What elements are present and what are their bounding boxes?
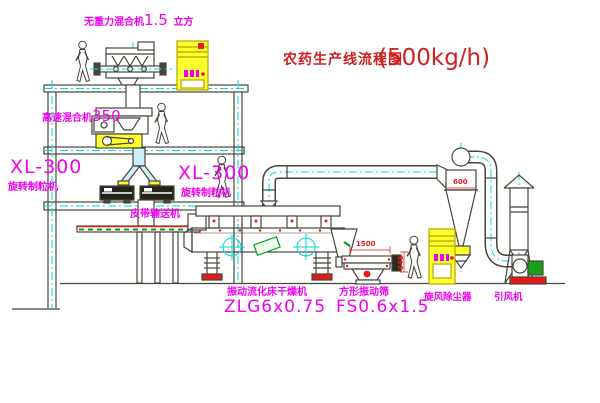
label-gravity-mixer: 无重力混合机1.5 立方 [84,12,193,28]
granulator-left-drawing [100,186,134,203]
fluid-bed-dryer-drawing [184,206,352,280]
label-granulator-left-name: 旋转制粒机 [8,183,58,193]
flow-diagram-canvas: 农药生产线流程图 (500kg/h) 无重力混合机1.5 立方 高速混合机350… [0,0,600,403]
worker-figure-1 [76,41,90,81]
belt-conveyor-drawing [77,226,200,283]
label-granulator-left-model: XL-300 [10,158,82,177]
label-cyclone: 旋风除尘器 [424,293,472,303]
gravity-mixer-drawing [90,42,172,112]
label-high-speed-mixer: 高速混合机350 [42,108,121,124]
dim-cyclone-diameter: 600 [453,179,468,186]
worker-figure-4 [407,236,421,278]
label-fan: 引风机 [494,293,523,303]
label-granulator-right-model: XL-300 [178,164,250,183]
dim-sieve-length: 1500 [356,241,375,248]
label-belt-conveyor: 皮带输送机 [130,210,180,220]
worker-figure-2 [155,103,169,143]
title-capacity: (500kg/h) [378,47,490,70]
induced-fan-drawing [510,255,546,284]
dim-sieve-height: 345 [398,255,405,270]
control-cabinet-top [177,41,208,90]
exhaust-duct-drawing [261,165,437,211]
label-granulator-right-name: 旋转制粒机 [181,189,231,199]
label-dryer-model: ZLG6x0.75 [224,299,326,316]
label-sieve-model: FS0.6x1.5 [336,299,429,316]
control-cabinet-right [429,229,455,284]
